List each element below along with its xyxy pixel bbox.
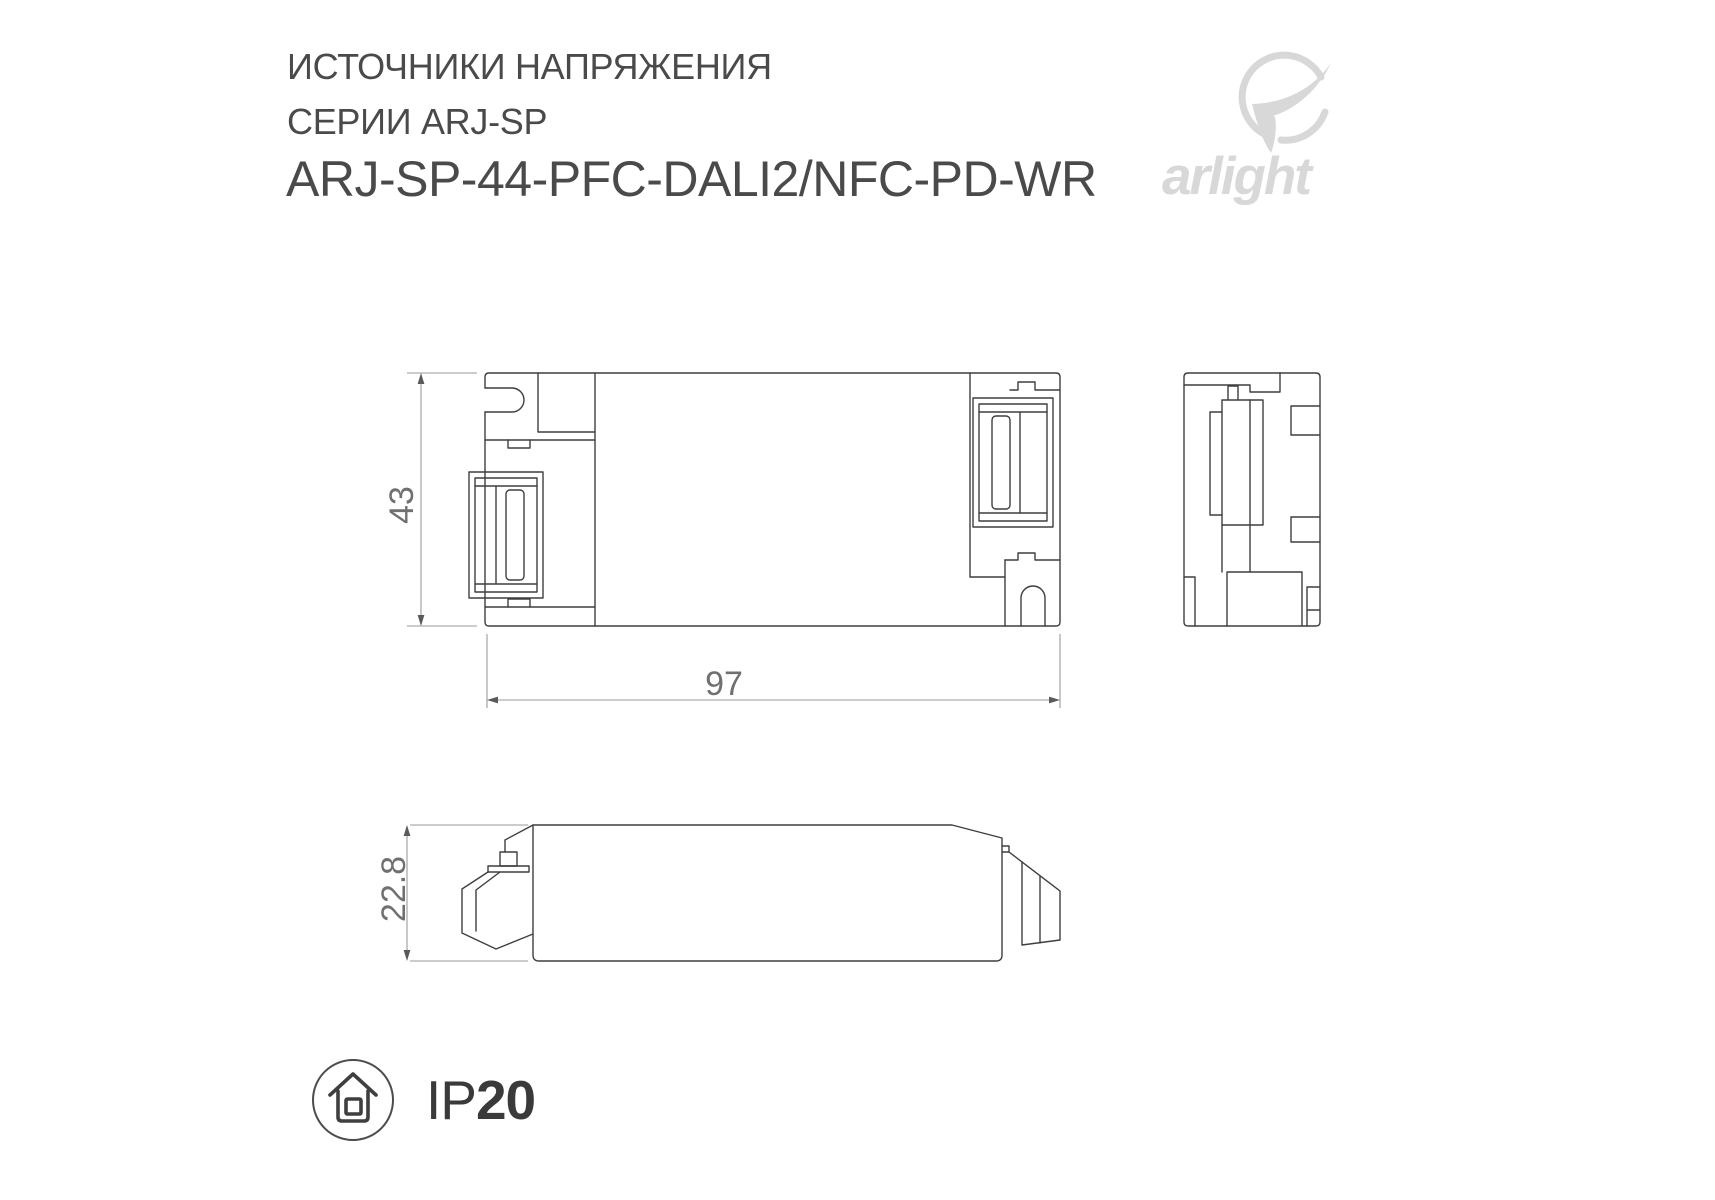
logo-wordmark: arlight	[1162, 150, 1310, 203]
dimension-label-length: 97	[705, 667, 743, 701]
end-view-drawing	[1184, 373, 1320, 626]
ip-rating-value: 20	[476, 1069, 535, 1131]
ip-rating: IP20	[426, 1073, 535, 1128]
page-title-series-code: СЕРИИ ARJ-SP	[287, 104, 547, 140]
datasheet-page: ИСТОЧНИКИ НАПРЯЖЕНИЯ СЕРИИ ARJ-SP ARJ-SP…	[0, 0, 1715, 1200]
ip-rating-prefix: IP	[426, 1069, 476, 1131]
page-title-series: ИСТОЧНИКИ НАПРЯЖЕНИЯ	[287, 49, 772, 85]
dimension-depth-22-8	[404, 825, 528, 961]
arlight-swoosh-icon	[1242, 55, 1331, 153]
house-in-circle-icon	[313, 1060, 393, 1140]
page-title-model: ARJ-SP-44-PFC-DALI2/NFC-PD-WR	[286, 154, 1097, 204]
dimension-length-97	[487, 634, 1060, 708]
side-view-drawing	[462, 825, 1060, 961]
dimension-label-height: 43	[385, 486, 419, 524]
dimension-label-depth: 22.8	[377, 856, 411, 922]
top-view-drawing	[469, 373, 1060, 626]
